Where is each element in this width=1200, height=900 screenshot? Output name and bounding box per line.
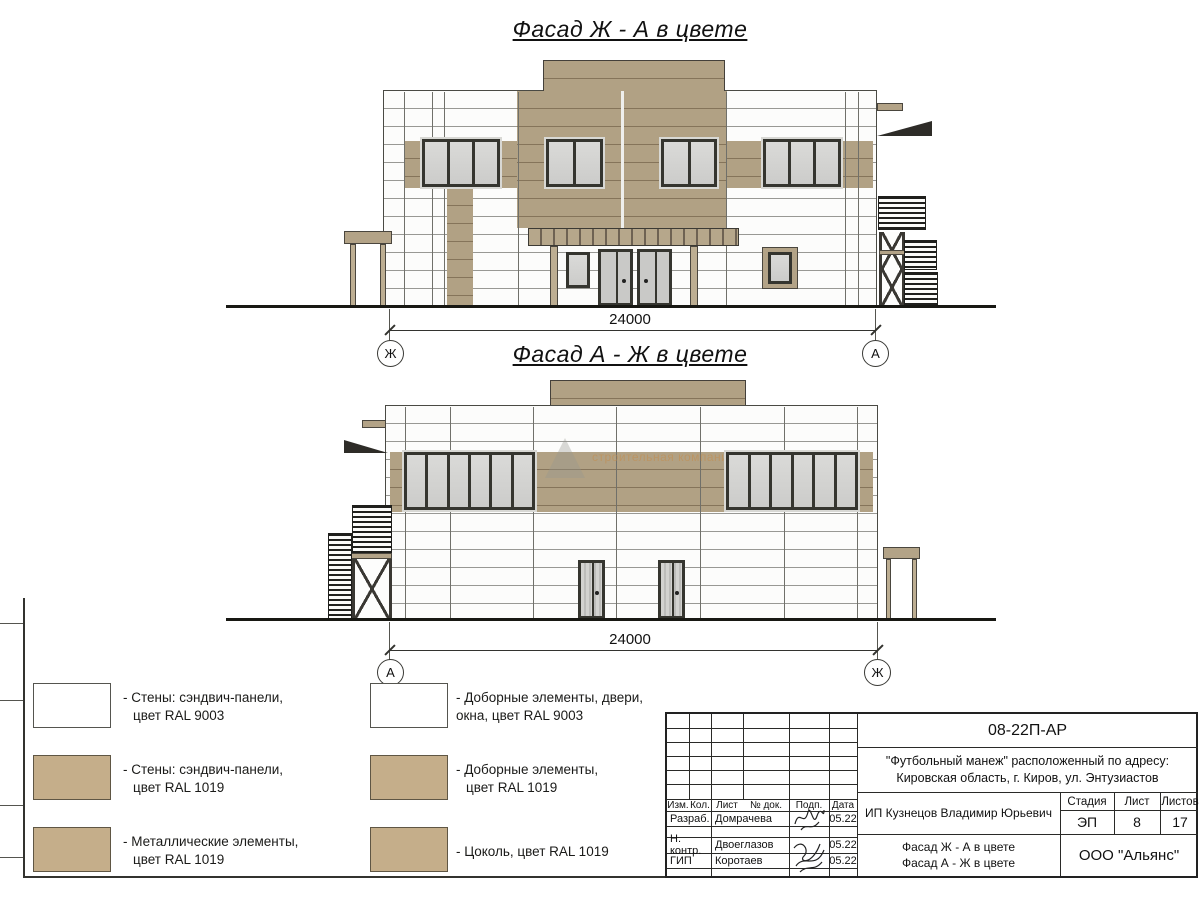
legend-swatch bbox=[370, 683, 448, 728]
project-line: "Футбольный манеж" расположенный по адре… bbox=[886, 753, 1169, 769]
tb-hline bbox=[667, 770, 857, 771]
signature-icon bbox=[791, 802, 827, 834]
signature-icon bbox=[790, 836, 828, 876]
doc-number: 08-22П-АР bbox=[857, 716, 1198, 746]
tb-name: Коротаев bbox=[715, 854, 787, 867]
drawing-sheet: Фасад Ж - А в цвете bbox=[0, 0, 1200, 900]
tb-hline bbox=[667, 826, 857, 827]
legend-label: - Цоколь, цвет RAL 1019 bbox=[456, 843, 691, 861]
legend-line: - Цоколь, цвет RAL 1019 bbox=[456, 844, 609, 859]
tb-date: 05.22 bbox=[829, 854, 857, 867]
sheets-value: 17 bbox=[1160, 811, 1200, 833]
tb-col-kol: Кол. bbox=[689, 799, 711, 811]
stage-header: Стадия bbox=[1060, 793, 1114, 810]
tb-role: ГИП bbox=[670, 854, 712, 867]
legend-line: цвет RAL 1019 bbox=[456, 779, 691, 797]
legend-swatch bbox=[370, 827, 448, 872]
title-block: Изм. Кол. Лист № док. Подп. Дата Разраб.… bbox=[665, 712, 1198, 878]
tb-hline bbox=[667, 756, 857, 757]
legend: - Стены: сэндвич-панели, цвет RAL 9003 -… bbox=[0, 0, 700, 900]
tb-col-data: Дата bbox=[829, 799, 857, 811]
legend-label: - Металлические элементы, цвет RAL 1019 bbox=[123, 833, 358, 869]
company-name: ООО "Альянс" bbox=[1060, 835, 1198, 876]
sheet-header: Лист bbox=[1114, 793, 1160, 810]
tb-col-list: Лист bbox=[711, 799, 743, 811]
tb-name: Домрачева bbox=[715, 812, 787, 825]
legend-line: окна, цвет RAL 9003 bbox=[456, 707, 691, 725]
tb-hline bbox=[667, 728, 857, 729]
tb-col-izm: Изм. bbox=[667, 799, 689, 811]
tb-hline bbox=[667, 868, 857, 869]
tb-name: Двоеглазов bbox=[715, 838, 787, 852]
axis-label: Ж bbox=[871, 665, 883, 680]
project-name: "Футбольный манеж" расположенный по адре… bbox=[857, 748, 1198, 791]
sheets-header: Листов bbox=[1160, 793, 1200, 810]
legend-line: цвет RAL 9003 bbox=[123, 707, 358, 725]
legend-line: - Доборные элементы, bbox=[456, 762, 598, 777]
legend-swatch bbox=[33, 755, 111, 800]
drawing-title-line: Фасад Ж - А в цвете bbox=[902, 840, 1015, 856]
legend-label: - Доборные элементы, цвет RAL 1019 bbox=[456, 761, 691, 797]
tb-role: Разраб. bbox=[670, 812, 712, 825]
legend-swatch bbox=[33, 827, 111, 872]
tb-date: 05.22 bbox=[829, 812, 857, 825]
axis-marker-zh: Ж bbox=[864, 659, 891, 686]
legend-line: цвет RAL 1019 bbox=[123, 779, 358, 797]
legend-label: - Стены: сэндвич-панели, цвет RAL 9003 bbox=[123, 689, 358, 725]
tb-role: Н. контр. bbox=[670, 838, 714, 852]
legend-swatch bbox=[33, 683, 111, 728]
tb-hline bbox=[667, 784, 857, 785]
client-name: ИП Кузнецов Владимир Юрьевич bbox=[857, 793, 1060, 833]
legend-label: - Доборные элементы, двери, окна, цвет R… bbox=[456, 689, 691, 725]
tb-hline bbox=[667, 742, 857, 743]
drawing-title-line: Фасад А - Ж в цвете bbox=[902, 856, 1015, 872]
legend-label: - Стены: сэндвич-панели, цвет RAL 1019 bbox=[123, 761, 358, 797]
project-line: Кировская область, г. Киров, ул. Энтузиа… bbox=[896, 770, 1158, 786]
legend-line: - Доборные элементы, двери, bbox=[456, 690, 643, 705]
legend-swatch bbox=[370, 755, 448, 800]
sheet-value: 8 bbox=[1114, 811, 1160, 833]
legend-line: цвет RAL 1019 bbox=[123, 851, 358, 869]
tb-col-doc: № док. bbox=[743, 799, 789, 811]
drawing-title: Фасад Ж - А в цвете Фасад А - Ж в цвете bbox=[857, 835, 1060, 876]
extension-line bbox=[877, 622, 878, 664]
legend-line: - Стены: сэндвич-панели, bbox=[123, 762, 283, 777]
legend-line: - Металлические элементы, bbox=[123, 834, 298, 849]
legend-line: - Стены: сэндвич-панели, bbox=[123, 690, 283, 705]
stage-value: ЭП bbox=[1060, 811, 1114, 833]
tb-date: 05.22 bbox=[829, 838, 857, 852]
